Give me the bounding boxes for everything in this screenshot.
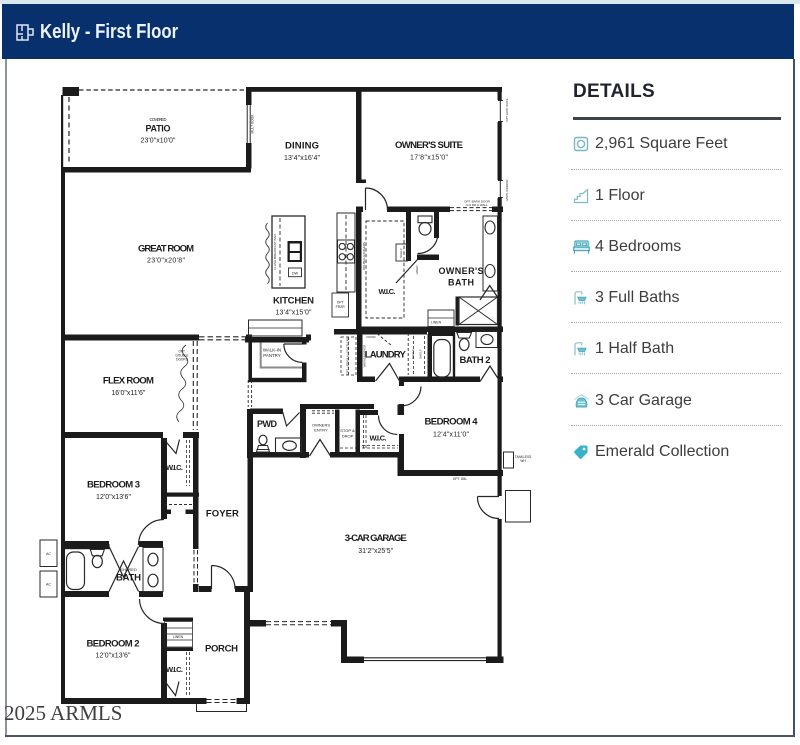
svg-text:FRZR: FRZR	[336, 305, 346, 309]
svg-text:DINING: DINING	[285, 141, 319, 152]
svg-text:COVERED: COVERED	[150, 117, 167, 122]
svg-text:STOP &: STOP &	[340, 428, 355, 433]
svg-text:BATH: BATH	[116, 573, 141, 584]
svg-text:OPT. UPPER & LOWER CAB: OPT. UPPER & LOWER CAB	[346, 337, 350, 374]
svg-text:12'0"x13'6": 12'0"x13'6"	[96, 494, 132, 501]
svg-text:OWNER'S: OWNER'S	[439, 266, 484, 276]
svg-text:PORCH: PORCH	[205, 644, 238, 655]
svg-text:LAUNDRY: LAUNDRY	[365, 350, 407, 361]
svg-text:DOORS: DOORS	[176, 358, 188, 362]
svg-text:W.I.C.: W.I.C.	[379, 287, 396, 296]
svg-text:OPT. DBL: OPT. DBL	[453, 477, 467, 481]
svg-text:PWD: PWD	[257, 419, 278, 429]
svg-text:WH: WH	[520, 459, 526, 463]
svg-text:23'0"x10'0": 23'0"x10'0"	[141, 138, 177, 145]
svg-text:23'0"x20'8": 23'0"x20'8"	[147, 258, 186, 265]
svg-text:SHELF: SHELF	[399, 248, 403, 258]
svg-text:BEDROOM 3: BEDROOM 3	[87, 480, 140, 491]
svg-text:12'0"x13'6": 12'0"x13'6"	[96, 653, 132, 660]
svg-text:13'4"x15'0": 13'4"x15'0"	[276, 310, 313, 317]
svg-text:FOYER: FOYER	[206, 509, 239, 520]
svg-text:BATH: BATH	[448, 278, 474, 288]
svg-text:W.I.C.: W.I.C.	[370, 434, 387, 443]
svg-text:MULT DOOR: MULT DOOR	[251, 114, 255, 134]
svg-text:MSTR WINDOW: MSTR WINDOW	[505, 179, 509, 200]
svg-text:BATH 2: BATH 2	[460, 355, 491, 366]
svg-text:12'4"x11'0": 12'4"x11'0"	[433, 432, 470, 439]
svg-text:BEDROOM 2: BEDROOM 2	[87, 639, 140, 650]
svg-text:LINEN: LINEN	[431, 321, 442, 325]
svg-text:KITCHEN: KITCHEN	[273, 296, 314, 307]
svg-text:DW: DW	[292, 272, 299, 276]
svg-text:OWNER'S SUITE: OWNER'S SUITE	[395, 140, 463, 151]
svg-text:31'2"x25'5": 31'2"x25'5"	[358, 548, 394, 555]
svg-text:3-CAR GARAGE: 3-CAR GARAGE	[345, 533, 407, 544]
svg-text:ENTRY: ENTRY	[314, 428, 328, 433]
svg-text:FLUSH BREAKFAST BAR: FLUSH BREAKFAST BAR	[273, 234, 277, 270]
svg-text:BEDROOM 4: BEDROOM 4	[425, 417, 479, 428]
svg-text:FLEX ROOM: FLEX ROOM	[103, 376, 154, 387]
svg-text:W.I.C.: W.I.C.	[166, 665, 183, 674]
svg-text:AC: AC	[46, 583, 51, 587]
svg-text:DOUBLE HANGERS: DOUBLE HANGERS	[362, 242, 366, 270]
svg-text:WALK-IN: WALK-IN	[263, 348, 281, 353]
svg-text:W.I.C.: W.I.C.	[166, 463, 183, 472]
svg-text:17'8"x15'0": 17'8"x15'0"	[410, 155, 449, 162]
svg-text:LINEN: LINEN	[173, 635, 184, 639]
svg-text:LINEN: LINEN	[415, 266, 419, 275]
svg-text:OPT EXTD SUITE: OPT EXTD SUITE	[505, 98, 509, 121]
svg-text:DROP: DROP	[342, 434, 354, 439]
svg-text:SHARED: SHARED	[120, 567, 137, 572]
svg-text:SHELF: SHELF	[419, 349, 423, 359]
svg-text:13'4"x16'4": 13'4"x16'4"	[284, 155, 321, 162]
svg-text:16'0"x11'6": 16'0"x11'6"	[111, 390, 146, 397]
svg-text:ILO DR & WALL: ILO DR & WALL	[466, 203, 488, 207]
svg-text:PATIO: PATIO	[146, 124, 171, 134]
svg-text:AC: AC	[46, 552, 51, 556]
svg-text:GREAT ROOM: GREAT ROOM	[138, 244, 194, 255]
svg-text:DOOR: DOOR	[367, 335, 377, 339]
svg-text:PANTRY: PANTRY	[263, 353, 280, 358]
svg-text:SHELF: SHELF	[411, 349, 415, 359]
svg-text:WASHER/DRYER: WASHER/DRYER	[363, 345, 367, 368]
